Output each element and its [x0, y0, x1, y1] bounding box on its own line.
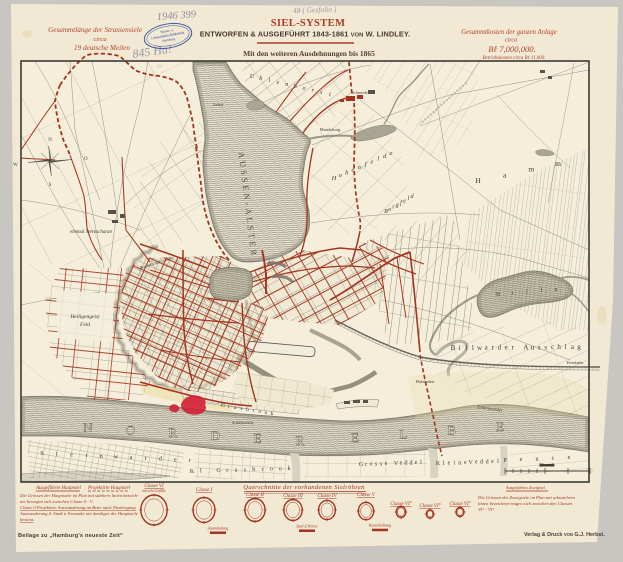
svg-text:Bℓ 7,000,000.: Bℓ 7,000,000. — [488, 44, 536, 54]
svg-text:e: e — [555, 287, 558, 293]
svg-text:N: N — [83, 420, 93, 435]
svg-text:bestens: bestens — [20, 517, 34, 522]
svg-text:mit sehr Gefälle: mit sehr Gefälle — [142, 489, 166, 493]
svg-text:Holzhafen: Holzhafen — [416, 379, 435, 384]
svg-text:b: b — [246, 407, 249, 413]
svg-text:Mundsburg: Mundsburg — [320, 127, 341, 132]
svg-text:Auswanderung d. Stadt u Vorsta: Auswanderung d. Stadt u Vorstadte mit da… — [19, 511, 138, 516]
svg-text:Querschnitte der vorhandenen S: Querschnitte der vorhandenen Sielröhren — [243, 484, 365, 491]
svg-text:l: l — [472, 344, 474, 352]
svg-text:E: E — [496, 419, 504, 434]
svg-text:b: b — [252, 467, 255, 473]
svg-text:B: B — [447, 423, 456, 438]
svg-text:Gesammtlänge der Strassensiele: Gesammtlänge der Strassensiele — [48, 26, 143, 34]
svg-text:Ausgeführte Hauptsiel: Ausgeführte Hauptsiel — [35, 486, 81, 491]
svg-text:N: N — [48, 138, 52, 143]
svg-text:S: S — [49, 183, 52, 188]
svg-text:e: e — [464, 460, 467, 466]
svg-text:e: e — [475, 460, 478, 466]
svg-text:d: d — [159, 457, 162, 463]
svg-text:L: L — [399, 426, 407, 441]
svg-text:E: E — [254, 430, 262, 445]
svg-text:U: U — [250, 74, 255, 80]
svg-text:n: n — [358, 164, 361, 171]
svg-text:h: h — [259, 76, 262, 82]
svg-text:O: O — [126, 423, 135, 438]
svg-text:Classe VI°: Classe VI° — [390, 502, 411, 507]
svg-text:r: r — [226, 468, 228, 474]
svg-text:Heiligengeist: Heiligengeist — [69, 314, 100, 320]
svg-text:r: r — [145, 456, 147, 462]
svg-text:SIEL-SYSTEM: SIEL-SYSTEM — [271, 18, 346, 29]
svg-text:Betriebskosten circa Bℓ 11,000: Betriebskosten circa Bℓ 11,000. — [482, 55, 545, 61]
svg-text:Classe III: Classe III — [283, 494, 303, 499]
svg-text:circa: circa — [505, 37, 517, 44]
svg-text:e: e — [520, 457, 523, 463]
svg-text:Classe V: Classe V — [357, 493, 376, 498]
svg-text:o: o — [388, 207, 391, 213]
svg-text:circa: circa — [93, 36, 107, 43]
svg-text:Beilage zu „Hamburg’s neueste: Beilage zu „Hamburg’s neueste Zeit“ — [18, 533, 123, 539]
svg-text:H: H — [475, 176, 481, 185]
svg-text:Maassstab: Maassstab — [540, 463, 555, 467]
svg-text:c: c — [551, 343, 554, 351]
svg-text:w: w — [114, 455, 119, 461]
svg-text:m: m — [528, 165, 534, 174]
svg-text:Classe VI°: Classe VI° — [419, 504, 440, 509]
svg-text:W: W — [13, 163, 18, 168]
svg-text:R: R — [168, 425, 177, 440]
svg-text:Mit den weiteren Ausdehnungen: Mit den weiteren Ausdehnungen bis 1865 — [243, 49, 375, 58]
svg-text:Isebek: Isebek — [212, 102, 223, 107]
svg-text:n: n — [458, 460, 461, 466]
svg-text:R: R — [296, 433, 305, 448]
svg-text:D: D — [211, 428, 220, 443]
svg-text:e: e — [491, 459, 494, 465]
svg-text:d: d — [480, 460, 483, 466]
svg-text:e: e — [415, 460, 418, 466]
svg-text:Die Grössen der Hauptsiele im: Die Grössen der Hauptsiele im Plan mit s… — [19, 493, 139, 498]
svg-text:Die Grössen der Zweigsiele im: Die Grössen der Zweigsiele im Plan mit s… — [477, 495, 576, 500]
svg-text:G: G — [216, 468, 221, 474]
svg-text:B: B — [496, 292, 500, 298]
svg-text:Schiffswerfte: Schiffswerfte — [232, 420, 254, 425]
svg-text:VI° - VI°: VI° - VI° — [478, 507, 494, 512]
svg-text:K: K — [190, 469, 195, 475]
svg-text:B: B — [451, 344, 456, 352]
svg-text:e: e — [505, 344, 508, 352]
svg-text:S: S — [40, 451, 43, 457]
svg-text:g: g — [577, 343, 581, 351]
svg-text:o: o — [279, 466, 282, 472]
svg-text:o: o — [303, 86, 306, 92]
svg-text:G: G — [221, 403, 225, 409]
svg-text:e: e — [400, 461, 403, 467]
svg-text:K: K — [436, 461, 441, 467]
svg-text:Gesammtkosten der ganzen Anlag: Gesammtkosten der ganzen Anlage — [461, 29, 557, 36]
svg-text:e: e — [174, 457, 177, 463]
svg-text:d: d — [498, 344, 502, 352]
svg-text:Feld: Feld — [79, 322, 90, 328]
svg-text:g: g — [396, 203, 399, 209]
svg-text:r: r — [253, 408, 255, 414]
svg-text:e: e — [371, 158, 374, 165]
svg-text:s: s — [538, 343, 541, 351]
svg-text:h: h — [345, 169, 348, 176]
svg-text:r: r — [262, 467, 264, 473]
svg-text:n: n — [100, 454, 103, 460]
svg-text:s: s — [240, 406, 242, 412]
svg-text:e: e — [277, 80, 280, 86]
svg-text:ehemal Sternschanze: ehemal Sternschanze — [70, 230, 113, 235]
svg-text:Ausgeführtes Zweigsiel: Ausgeführtes Zweigsiel — [505, 485, 546, 490]
svg-text:o: o — [265, 410, 268, 416]
svg-text:net bewegen sich zwischen Clas: net bewegen sich zwischen Classe 0 - V. — [20, 499, 94, 504]
svg-text:G: G — [359, 462, 364, 468]
svg-text:d: d — [410, 460, 413, 466]
svg-text:h: h — [294, 84, 297, 90]
svg-text:m: m — [555, 159, 561, 168]
svg-text:O: O — [84, 157, 88, 162]
svg-text:k: k — [288, 466, 291, 472]
svg-text:s: s — [544, 343, 547, 351]
svg-text:A: A — [523, 343, 528, 351]
svg-text:Kanalisebung: Kanalisebung — [368, 523, 391, 528]
svg-text:Ausmündung: Ausmündung — [207, 526, 229, 531]
svg-text:V: V — [394, 461, 399, 467]
svg-text:r: r — [189, 458, 191, 464]
svg-text:l: l — [377, 156, 379, 163]
svg-text:o: o — [258, 409, 261, 415]
svg-text:e: e — [385, 461, 388, 467]
svg-text:n: n — [285, 82, 288, 88]
svg-text:k: k — [271, 411, 274, 417]
svg-text:H: H — [331, 175, 337, 182]
svg-text:Classe 0 Projektirte Auswander: Classe 0 Projektirte Auswanderung im Bet… — [20, 505, 136, 510]
svg-text:V: V — [469, 460, 474, 466]
svg-text:r: r — [365, 462, 367, 468]
svg-text:ENTWORFEN & AUSGEFÜHRT 1843-18: ENTWORFEN & AUSGEFÜHRT 1843-1861 VON W. … — [200, 30, 411, 39]
svg-text:e: e — [403, 198, 406, 204]
svg-text:48 ( Gezfolio ): 48 ( Gezfolio ) — [293, 4, 337, 15]
svg-text:i: i — [459, 344, 461, 352]
svg-text:r: r — [228, 404, 230, 410]
svg-text:Projektirte Hauptsiel: Projektirte Hauptsiel — [87, 486, 131, 491]
svg-text:d: d — [486, 459, 489, 465]
svg-text:e: e — [448, 461, 451, 467]
svg-text:Eisenbahn: Eisenbahn — [567, 360, 584, 365]
svg-text:e: e — [70, 452, 73, 458]
svg-text:e: e — [352, 167, 355, 174]
svg-text:o: o — [270, 467, 273, 473]
svg-text:l: l — [465, 344, 467, 352]
svg-text:E: E — [351, 430, 359, 445]
svg-text:Classe VI°: Classe VI° — [449, 502, 470, 507]
svg-text:e: e — [568, 455, 571, 461]
svg-text:Classe IV: Classe IV — [317, 494, 337, 499]
svg-text:Classe I: Classe I — [196, 488, 213, 493]
svg-text:d: d — [405, 461, 408, 467]
svg-text:l: l — [565, 343, 567, 351]
svg-text:a: a — [129, 455, 132, 461]
svg-text:u: u — [536, 457, 539, 463]
svg-text:u: u — [531, 343, 535, 351]
svg-text:e: e — [390, 150, 393, 157]
svg-text:h: h — [557, 343, 561, 351]
svg-text:a: a — [235, 468, 238, 474]
svg-text:Classe II: Classe II — [246, 493, 264, 498]
svg-text:Saal d.Wörse: Saal d.Wörse — [296, 524, 318, 529]
svg-text:linien bezeichnet-tragen sich: linien bezeichnet-tragen sich zwischen d… — [478, 501, 573, 506]
svg-text:o: o — [370, 462, 373, 468]
svg-text:19 deutsche Meilen: 19 deutsche Meilen — [74, 44, 130, 52]
